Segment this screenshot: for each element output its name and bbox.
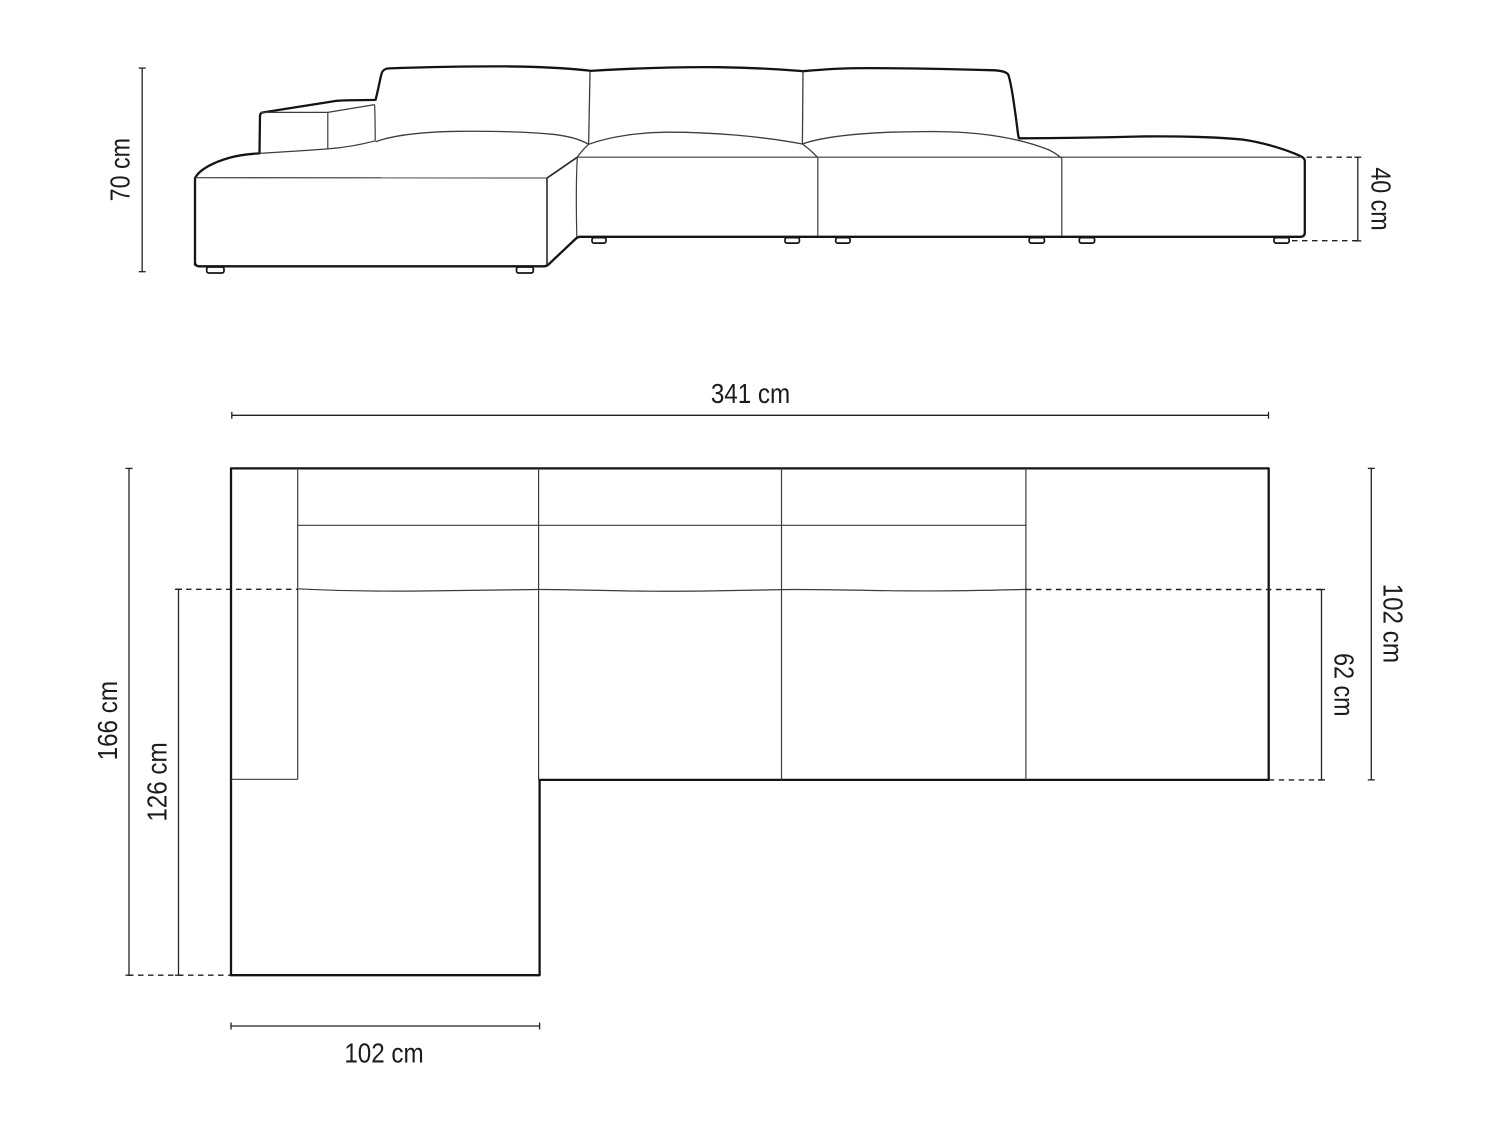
svg-text:102 cm: 102 cm: [344, 1037, 423, 1069]
svg-text:70 cm: 70 cm: [106, 138, 136, 201]
svg-text:40 cm: 40 cm: [1365, 167, 1395, 230]
svg-text:62 cm: 62 cm: [1328, 653, 1358, 716]
svg-text:102 cm: 102 cm: [1377, 584, 1409, 663]
svg-text:126 cm: 126 cm: [141, 742, 173, 821]
svg-text:341 cm: 341 cm: [711, 377, 790, 409]
svg-text:166 cm: 166 cm: [91, 681, 123, 760]
